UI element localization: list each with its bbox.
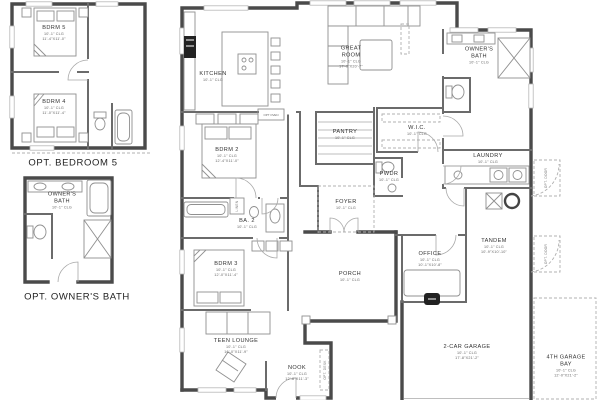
owners-bath-fixtures (446, 33, 530, 99)
bathtub-icon (115, 110, 132, 144)
pantry-shelves (318, 122, 372, 154)
toilet-icon (94, 112, 106, 130)
vanity-icon (266, 204, 284, 232)
caption-opt-bedroom5: OPT. BEDROOM 5 (28, 158, 117, 169)
water-heater-icon (505, 194, 519, 208)
opt-bedroom5-plan (10, 2, 150, 153)
vanity-icon (28, 181, 82, 192)
bed-icon (202, 124, 256, 178)
bed-icon (22, 8, 88, 56)
teen-lounge-fixtures (206, 312, 270, 382)
double-vanity-icon (447, 33, 495, 44)
bar-stools (271, 38, 280, 102)
fourth-garage-bay-outline (534, 298, 596, 399)
laundry-fixtures (445, 166, 529, 184)
office-fixtures (404, 270, 460, 305)
great-room-fixtures (328, 6, 420, 84)
water-softener-icon (486, 193, 502, 209)
shower-icon (84, 220, 111, 258)
bathtub-icon (184, 202, 228, 217)
bdrm2-fixtures (196, 114, 258, 178)
door-swings (236, 116, 464, 398)
annotation-opt-oven: OPT OVEN (264, 113, 279, 117)
annotation-opt-door-1: OPT. DOOR (544, 168, 548, 188)
tandem-fixtures (486, 193, 519, 209)
toilet-tank (376, 162, 382, 173)
caption-opt-owners-bath: OPT. OWNER'S BATH (24, 292, 130, 303)
toilet-icon (446, 85, 464, 99)
sink-icon (388, 184, 396, 192)
toilet-icon (382, 162, 394, 172)
floor-plan-drawing (0, 0, 600, 400)
ba2-fixtures (184, 198, 284, 232)
toilet-icon (27, 225, 46, 239)
desk-icon (404, 270, 460, 296)
bed-icon (22, 94, 88, 142)
annotation-opt-desk: OPT. DESK (323, 360, 327, 379)
wic-closet-rods (382, 114, 440, 148)
annotation-opt-door-2: OPT. DOOR (544, 244, 548, 264)
opt-owners-bath-plan (25, 178, 112, 282)
floor-plan-sheet: OPT. BEDROOM 5 OPT. OWNER'S BATH BDRM 5 … (0, 0, 600, 400)
opt-media-wall (401, 24, 409, 54)
kitchen-island (222, 32, 268, 106)
powder-room-fixtures (376, 162, 396, 192)
bathtub-icon (87, 180, 111, 216)
bed-icon (194, 250, 244, 306)
coffee-table-icon (360, 40, 392, 70)
toilet-icon (250, 207, 259, 218)
annotation-linen: LINEN (235, 201, 239, 212)
lounge-chair-icon (216, 352, 246, 382)
fridge-icon (184, 36, 196, 58)
sofa-icon (206, 312, 270, 334)
kitchen-fixtures (184, 12, 284, 120)
shower-icon (498, 38, 530, 78)
